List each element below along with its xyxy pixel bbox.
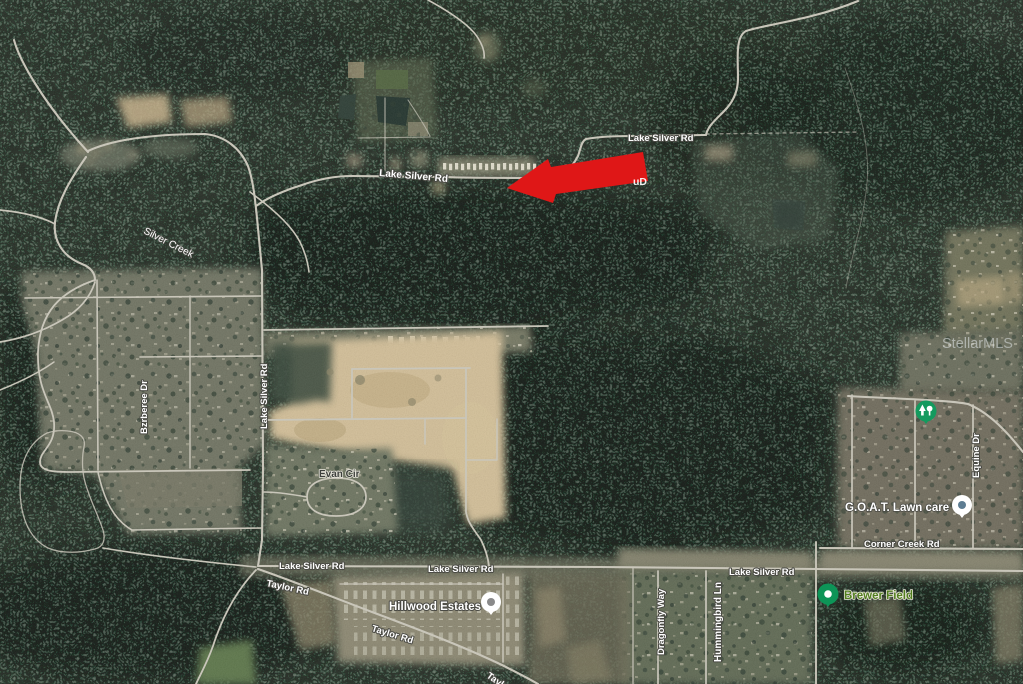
svg-text:G.O.A.T. Lawn care: G.O.A.T. Lawn care [845, 502, 949, 514]
svg-text:Equine Dr: Equine Dr [971, 433, 982, 478]
svg-text:Corner Creek Rd: Corner Creek Rd [864, 539, 940, 550]
svg-text:Hillwood Estates: Hillwood Estates [389, 601, 481, 613]
svg-text:Lake Silver Rd: Lake Silver Rd [259, 363, 270, 429]
svg-text:StellarMLS: StellarMLS [942, 336, 1013, 352]
svg-text:Bzrberee Dr: Bzrberee Dr [139, 380, 150, 434]
svg-text:Dragonfly Way: Dragonfly Way [656, 588, 667, 655]
svg-text:Lake Silver Rd: Lake Silver Rd [729, 567, 795, 578]
svg-text:Evan Cir: Evan Cir [319, 469, 360, 480]
svg-text:uD: uD [633, 176, 647, 188]
svg-text:Lake Silver Rd: Lake Silver Rd [428, 564, 494, 575]
svg-text:Lake Silver Rd: Lake Silver Rd [279, 561, 345, 572]
svg-text:Hummingbird Ln: Hummingbird Ln [713, 582, 724, 662]
svg-text:Brewer Field: Brewer Field [844, 590, 913, 602]
svg-text:Lake Silver Rd: Lake Silver Rd [628, 133, 694, 144]
